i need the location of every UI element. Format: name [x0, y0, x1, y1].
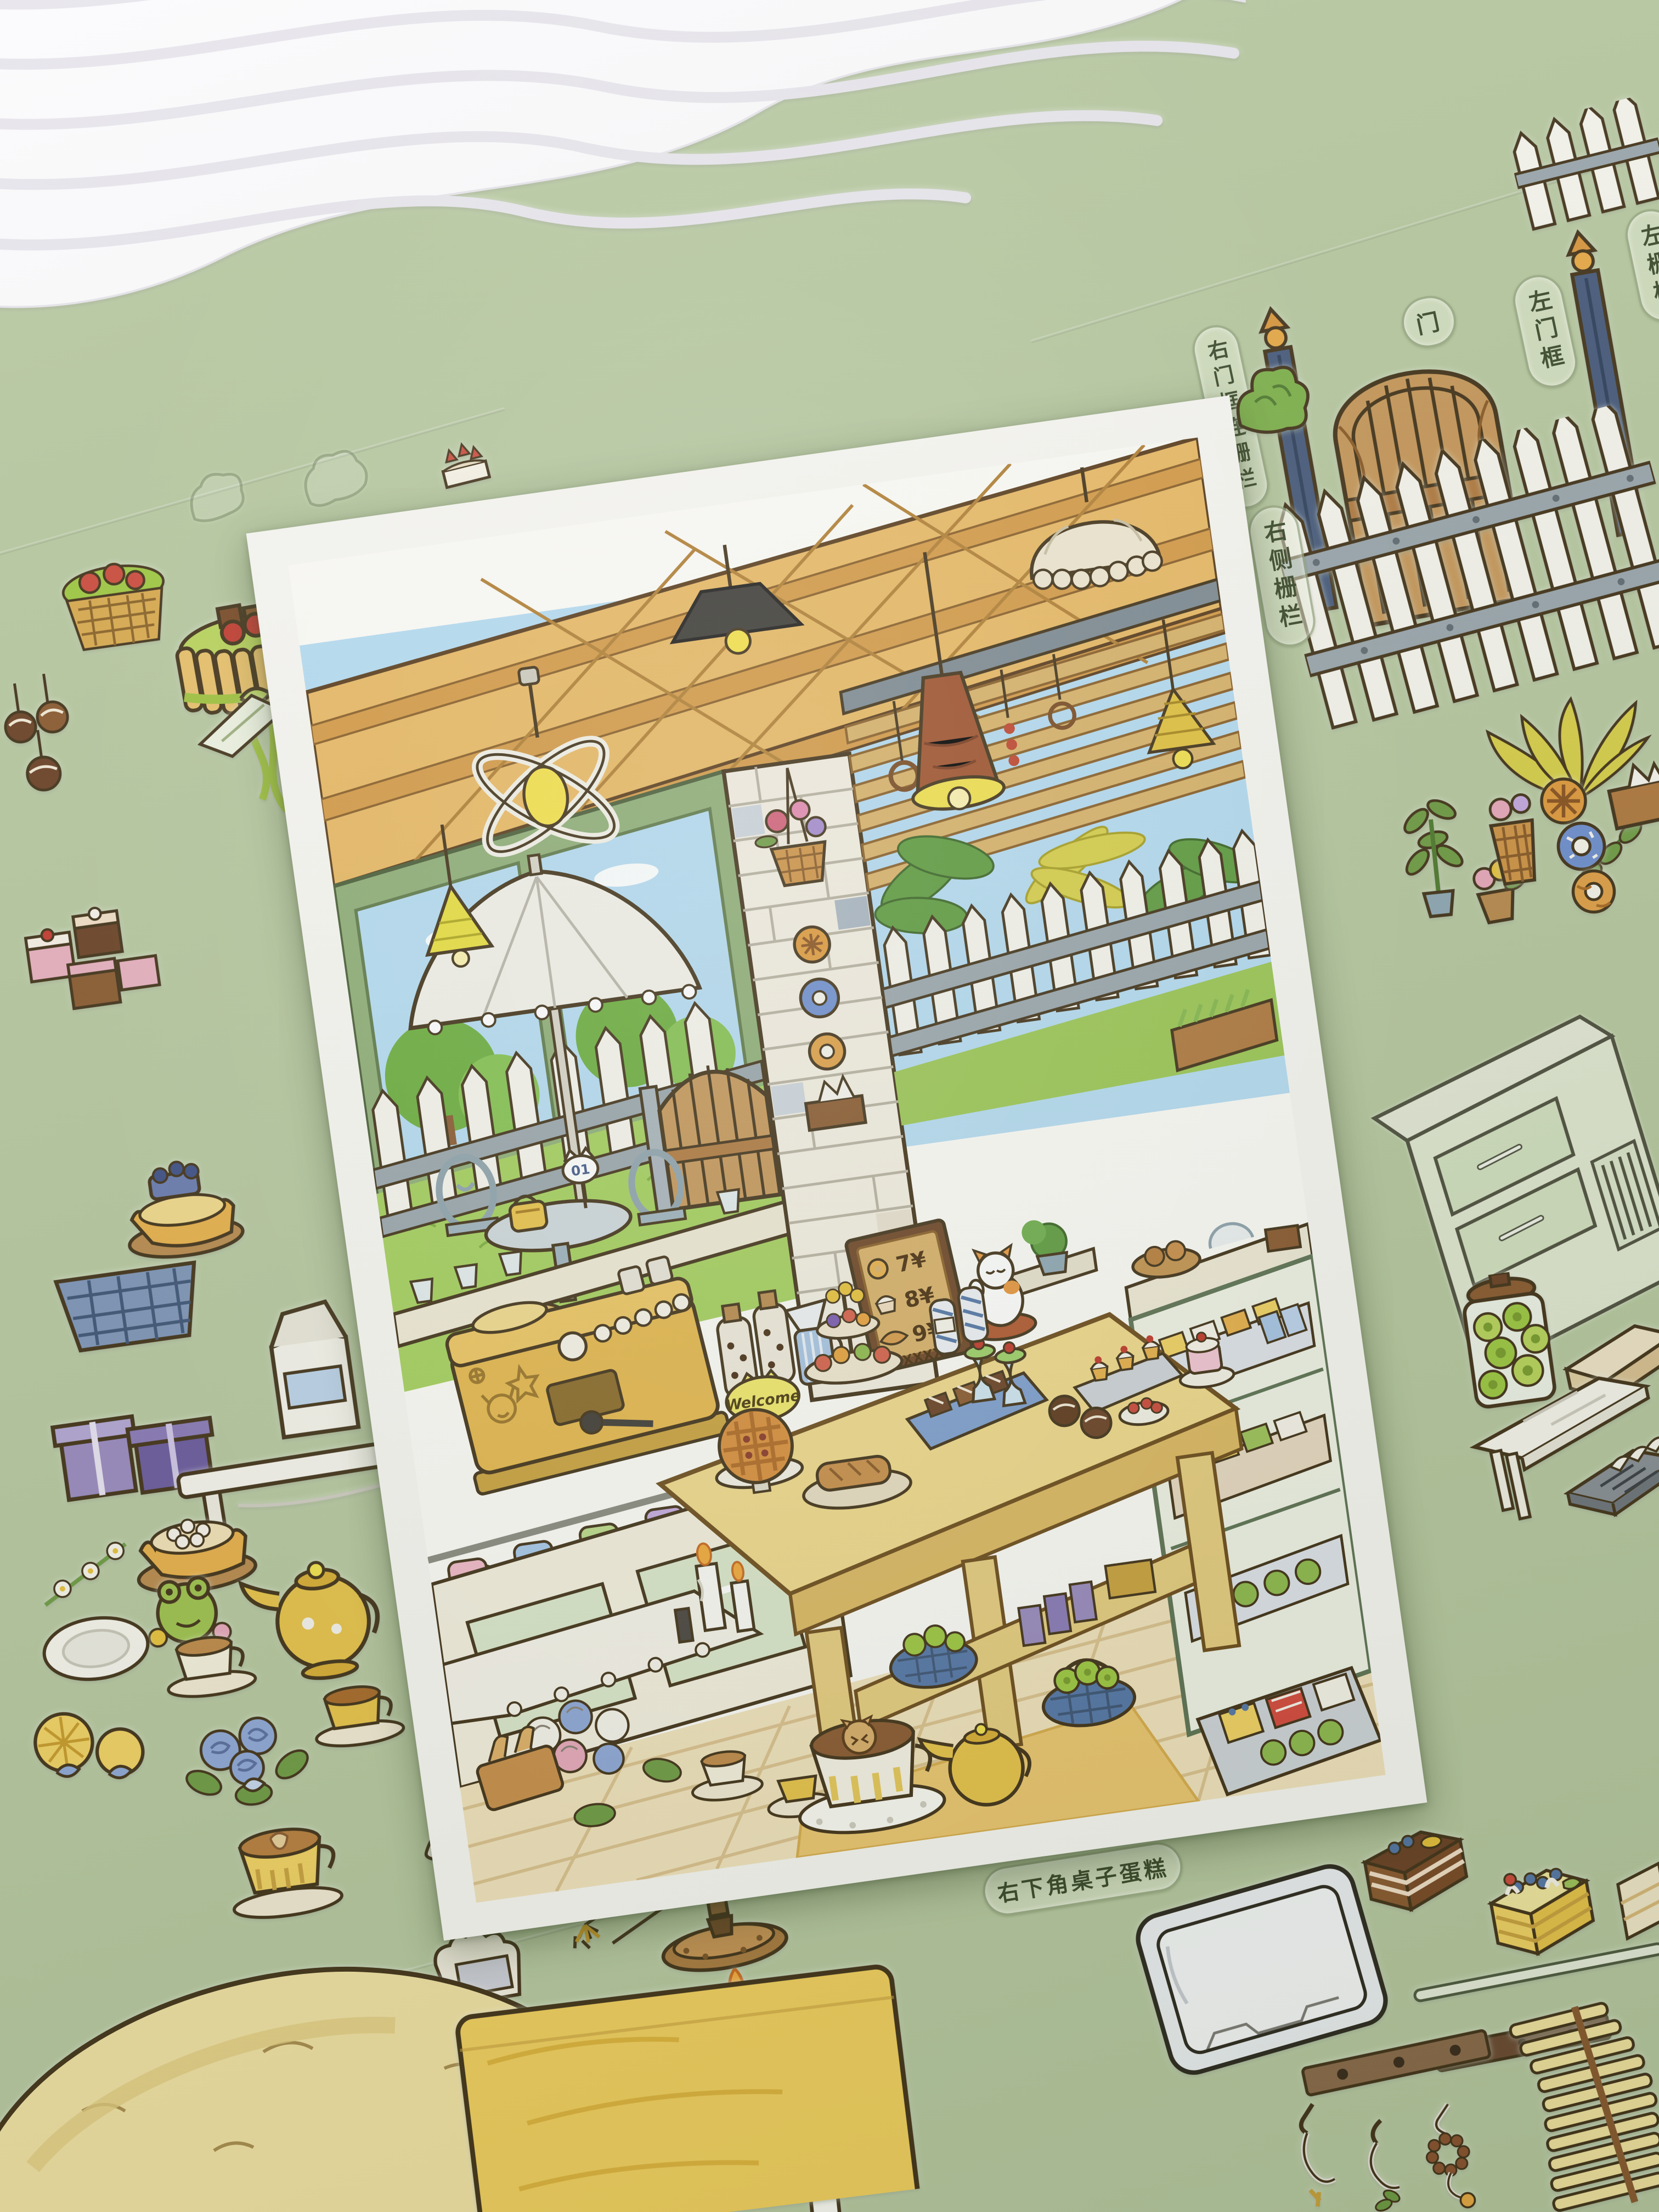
strawberry-cake-small-sticker — [427, 427, 500, 500]
teacup-sticker — [151, 1612, 266, 1708]
orange-donut-sticker — [1566, 864, 1621, 919]
svg-text:01: 01 — [570, 1161, 591, 1179]
plate-sticker — [33, 1600, 159, 1697]
hanging-hook-sticker — [1284, 2098, 1350, 2212]
label-text: 右侧栅栏 — [1255, 517, 1308, 635]
pastry-box — [1266, 1226, 1301, 1251]
empty-sticker-outline — [176, 459, 258, 529]
woven-basket-sticker — [40, 1234, 218, 1366]
lemon-candy-bow-sticker — [15, 1686, 166, 1809]
shelf-plant-pot — [1020, 1216, 1071, 1277]
green-bush-sticker — [1229, 351, 1317, 444]
label-text: 左门框 — [1520, 286, 1570, 376]
art-print-poster: 01 — [246, 396, 1427, 1941]
poster-illustration: 01 — [288, 437, 1385, 1898]
empty-sticker-outline — [290, 436, 379, 513]
hanging-hook-sticker — [1352, 2116, 1413, 2212]
teacup-sticker — [299, 1661, 414, 1757]
chocolate-pops-sticker — [0, 664, 91, 806]
tall-plant-sticker — [1392, 787, 1477, 925]
latte-cup-sticker — [210, 1796, 362, 1929]
label-text: 左栅栏 — [1632, 220, 1659, 311]
hanging-wreath-hook-sticker — [1410, 2098, 1486, 2212]
white-wavy-board — [0, 0, 1266, 342]
bamboo-mat-sticker — [1502, 1989, 1659, 2212]
label-left-fence: 左栅栏 — [1621, 205, 1659, 327]
petit-fours-sticker — [8, 884, 172, 1030]
photo-canvas: 窗外元素 右门框连栅栏 门 左门框 — [0, 0, 1659, 2212]
